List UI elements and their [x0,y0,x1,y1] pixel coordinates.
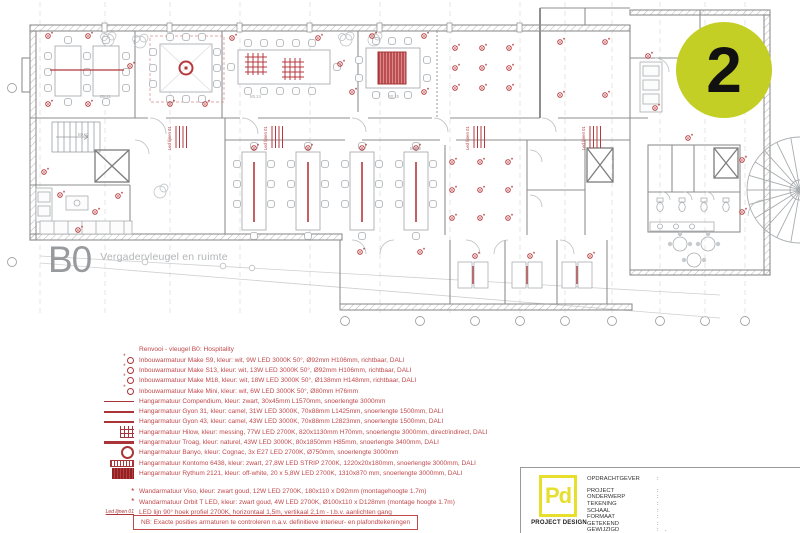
field-label: TEKENING [587,501,657,507]
title-block-row: ONDERWERP: [587,494,705,501]
downlight-marker-icon [104,357,139,364]
title-block-row: TEKENING: [587,501,705,508]
field-label: GEWIJZIGD [587,527,657,533]
step-badge[interactable]: 2 [676,22,772,118]
field-colon: : [657,476,665,482]
spiral-stair [747,137,800,243]
sheet-title: Vergadervleugel en ruimte [100,251,228,263]
striped-bar-icon [104,460,139,467]
sheet-label: B0 Vergadervleugel en ruimte [48,241,228,278]
svg-text:B0.13: B0.13 [410,146,422,151]
legend-item-text: Inbouwarmatuur Make S9, kleur: wit, 9W L… [139,357,404,364]
legend-row: Hangarmatuur Gyon 43, kleur: camel, 43W … [104,417,704,427]
legend-row: Hangarmatuur Gyon 31, kleur: camel, 31W … [104,406,704,416]
svg-text:B0.21: B0.21 [100,94,112,99]
legend-row: Inbouwarmatuur Make S9, kleur: wit, 9W L… [104,355,704,365]
company-logo: Pd [539,475,577,517]
legend-row: Hangarmatuur Banyo, kleur: Cognac, 3x E2… [104,448,704,458]
company-name: PROJECT DESIGN [527,520,591,526]
legend-row: Hangarmatuur Troag, kleur: naturel, 43W … [104,437,704,447]
legend-row: Hangarmatuur Hilow, kleur: messing, 77W … [104,427,704,437]
legend-item-text: Inbouwarmatuur Make S13, kleur: wit, 13W… [139,367,411,374]
drawing-sheet: Led lijnen 01 Led lijnen 01 Led lijnen 0… [0,0,800,533]
led-line-label: Led lijnen 01 [167,126,172,150]
staircase [52,122,100,152]
pendant-line-thin-icon [104,401,139,402]
led-line-label: Led lijnen 01 [263,126,268,150]
door-arcs [135,58,764,254]
legend-item-text: Hangarmatuur Rythum 2121, kleur: off-whi… [139,470,462,477]
field-value: . [665,527,705,533]
kitchen-counters [36,188,132,234]
legend-item-text: Hangarmatuur Troag, kleur: naturel, 43W … [139,439,439,446]
legend-row: Inbouwarmatuur Make M18, kleur: wit, 18W… [104,376,704,386]
legend-item-text: Inbouwarmatuur Make M18, kleur: wit, 18W… [139,377,416,384]
sheet-code: B0 [48,241,91,278]
lounge-tables [668,232,720,267]
field-colon: : [657,527,665,533]
title-block-fields: OPDRACHTGEVER:PROJECT:ONDERWERP:TEKENING… [587,476,705,533]
meeting-room-d [356,38,431,99]
desk-groups [458,262,592,288]
svg-text:B0.24: B0.24 [250,94,262,99]
legend-header: Renvooi - vleugel B0: Hospitality [139,344,704,355]
toilets [650,198,729,231]
legend-item-text: Hangarmatuur Kontomo 6438, kleur: zwart,… [139,460,476,467]
field-label: FORMAAT [587,514,657,520]
grid-hash-icon [104,426,139,438]
asterisk-icon: * [104,489,139,495]
title-block-row: OPDRACHTGEVER: [587,476,705,483]
legend-item-text: Hangarmatuur Hilow, kleur: messing, 77W … [139,429,488,436]
svg-text:B0.02: B0.02 [78,132,90,137]
led-line-label: Led lijnen 01 [581,126,586,150]
legend-item-text: Wandarmatuur Orbit T LED, kleur: zwart g… [139,499,455,506]
field-colon: : [657,521,665,527]
title-block-row: GEWIJZIGD:. [587,527,705,533]
legend-item-text: Hangarmatuur Banyo, kleur: Cognac, 3x E2… [139,449,398,456]
legend-item-text: Hangarmatuur Gyon 31, kleur: camel, 31W … [139,408,443,415]
field-label: GETEKEND [587,521,657,527]
company-logo-letters: Pd [545,483,571,509]
title-block-row: GETEKEND: [587,521,705,528]
field-colon: : [657,514,665,520]
field-label: SCHAAL [587,508,657,514]
legend-item-text: Wandarmatuur Viso, kleur: zwart goud, 12… [139,488,426,495]
pendant-line-thick-icon [104,441,139,445]
step-badge-number: 2 [706,38,742,102]
title-block-row: SCHAAL: [587,507,705,514]
field-label: ONDERWERP [587,494,657,500]
meeting-room-a [45,37,130,106]
pendant-line-medium-icon [104,421,139,423]
led-line-label: Led lijnen 01 [465,126,470,150]
ring-icon [104,446,139,459]
asterisk-icon: * [104,499,139,505]
meeting-room-b [150,34,224,103]
led-line-clusters: Led lijnen 01 Led lijnen 01 Led lijnen 0… [167,126,601,150]
legend-row: Inbouwarmatuur Make Mini, kleur: wit, 6W… [104,386,704,396]
field-colon: : [657,508,665,514]
legend-row: Inbouwarmatuur Make S13, kleur: wit, 13W… [104,365,704,375]
legend-item-text: Inbouwarmatuur Make Mini, kleur: wit, 6W… [139,388,358,395]
legend-note: NB: Exacte posities armaturen te control… [133,515,418,530]
downlight-marker-icon [104,377,139,384]
field-colon: : [657,488,665,494]
legend-item-text: Hangarmatuur Compendium, kleur: zwart, 3… [139,398,385,405]
work-tables [234,143,437,240]
title-block-row: PROJECT: [587,488,705,495]
field-colon: : [657,501,665,507]
downlight-marker-icon [104,388,139,395]
legend-row: Hangarmatuur Compendium, kleur: zwart, 3… [104,396,704,406]
title-block: Pd PROJECT DESIGN OPDRACHTGEVER:PROJECT:… [520,467,800,533]
field-label: PROJECT [587,488,657,494]
title-block-row: FORMAAT: [587,514,705,521]
dense-striped-block-icon [104,468,139,479]
meeting-room-c [228,40,341,95]
field-label: OPDRACHTGEVER [587,476,657,482]
field-colon: : [657,494,665,500]
pendant-line-medium-icon [104,411,139,413]
legend-item-text: Hangarmatuur Gyon 43, kleur: camel, 43W … [139,418,443,425]
downlight-marker-icon [104,367,139,374]
svg-text:B0.25: B0.25 [388,94,400,99]
